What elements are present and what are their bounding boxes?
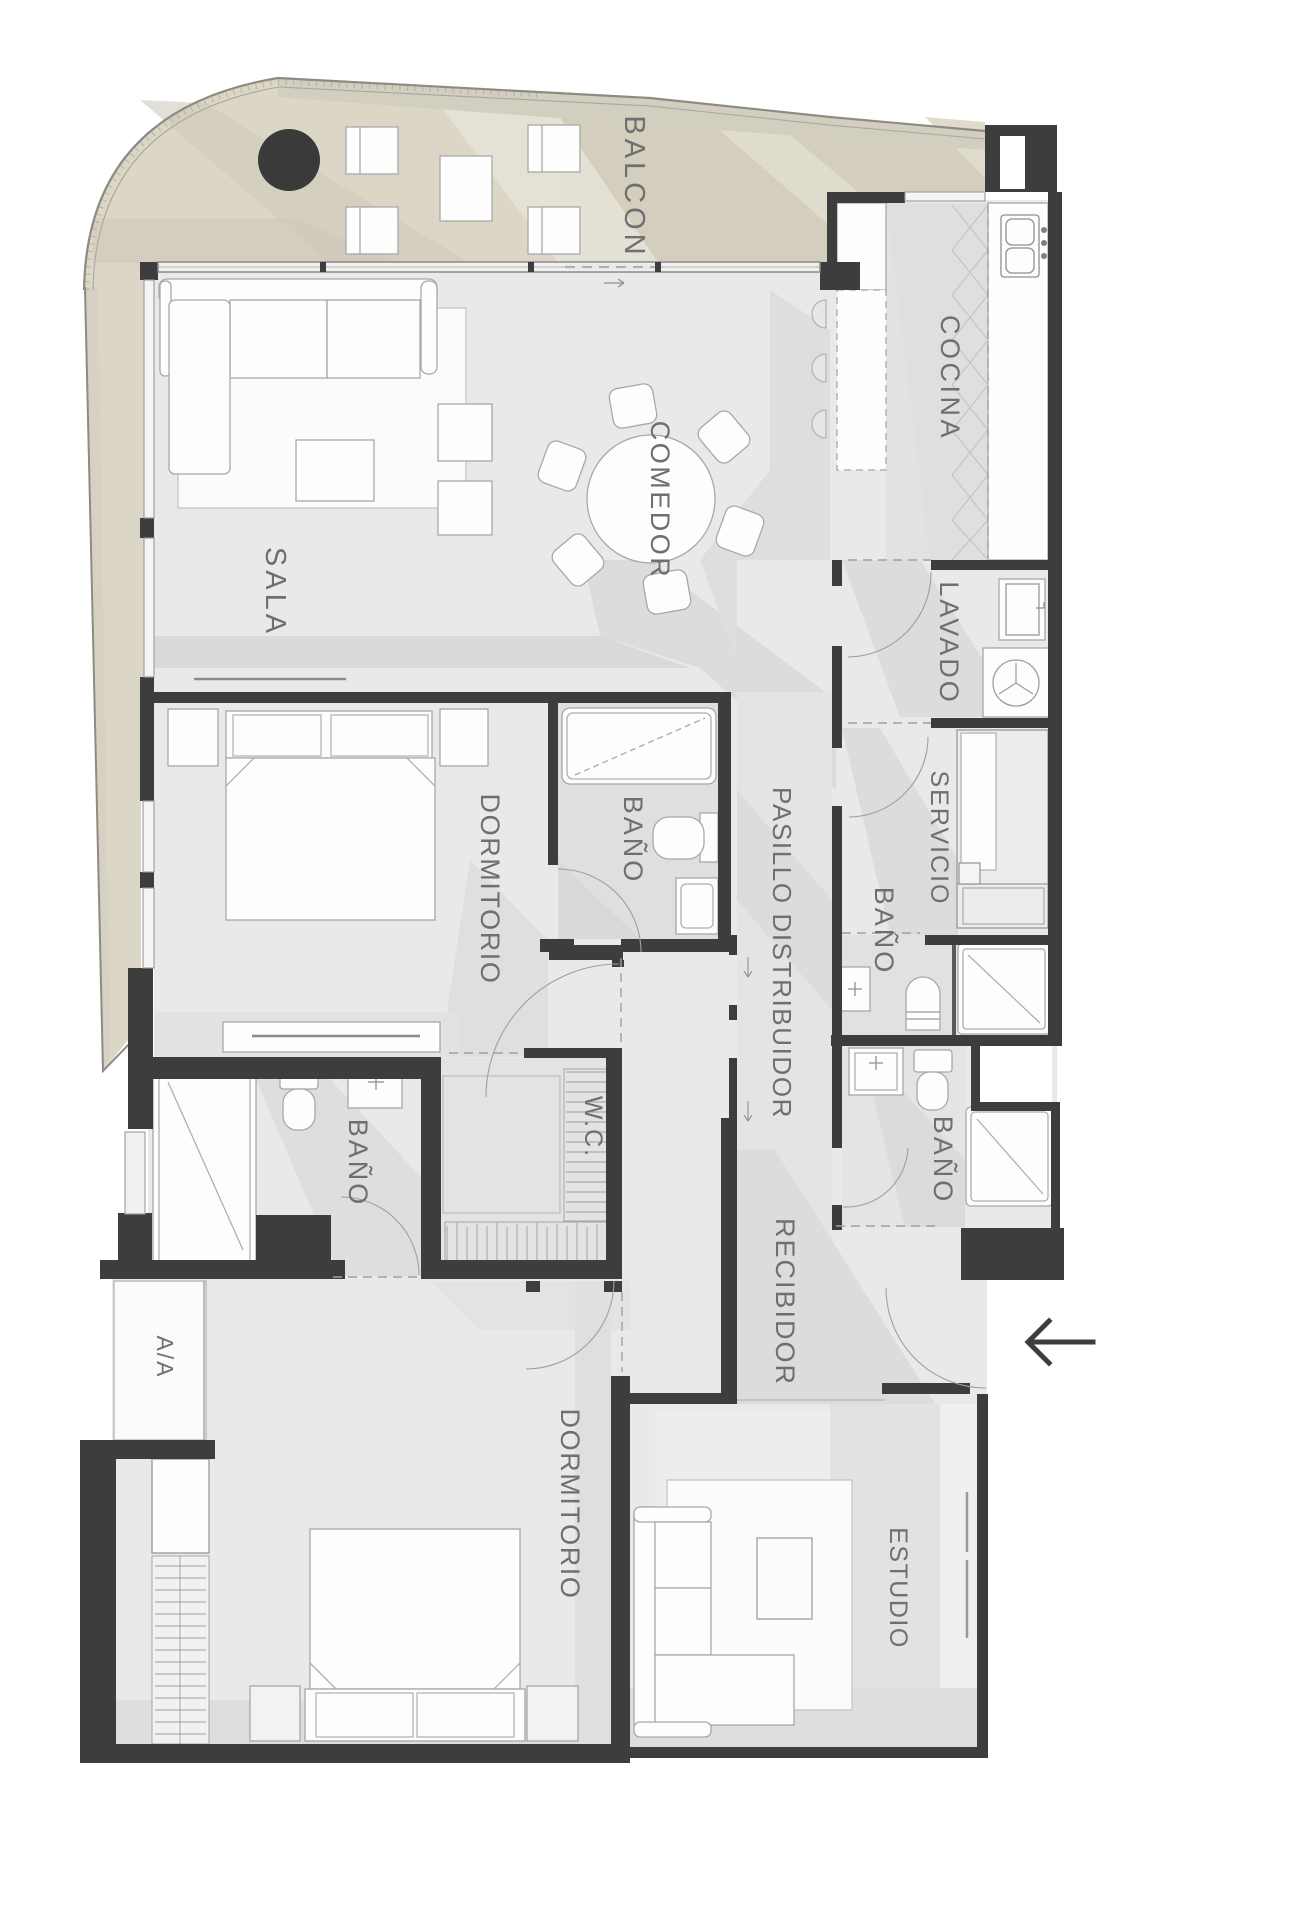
svg-text:BAÑO: BAÑO — [869, 887, 900, 976]
svg-text:PASILLO DISTRIBUIDOR: PASILLO DISTRIBUIDOR — [767, 787, 797, 1119]
svg-text:ESTUDIO: ESTUDIO — [884, 1527, 912, 1649]
svg-text:BALCON: BALCON — [618, 115, 650, 258]
svg-text:COMEDOR: COMEDOR — [645, 421, 675, 580]
svg-text:RECIBIDOR: RECIBIDOR — [770, 1218, 800, 1386]
svg-text:DORMITORIO: DORMITORIO — [555, 1409, 585, 1600]
svg-text:BAÑO: BAÑO — [618, 796, 649, 885]
svg-text:BAÑO: BAÑO — [343, 1119, 374, 1208]
svg-text:LAVADO: LAVADO — [934, 581, 964, 705]
svg-text:SALA: SALA — [259, 547, 291, 637]
svg-text:SERVICIO: SERVICIO — [925, 770, 953, 905]
svg-text:A/A: A/A — [152, 1335, 178, 1378]
svg-text:DORMITORIO: DORMITORIO — [475, 794, 505, 985]
svg-text:W.C.: W.C. — [579, 1096, 607, 1158]
svg-text:COCINA: COCINA — [935, 315, 965, 441]
svg-text:BAÑO: BAÑO — [928, 1116, 959, 1205]
